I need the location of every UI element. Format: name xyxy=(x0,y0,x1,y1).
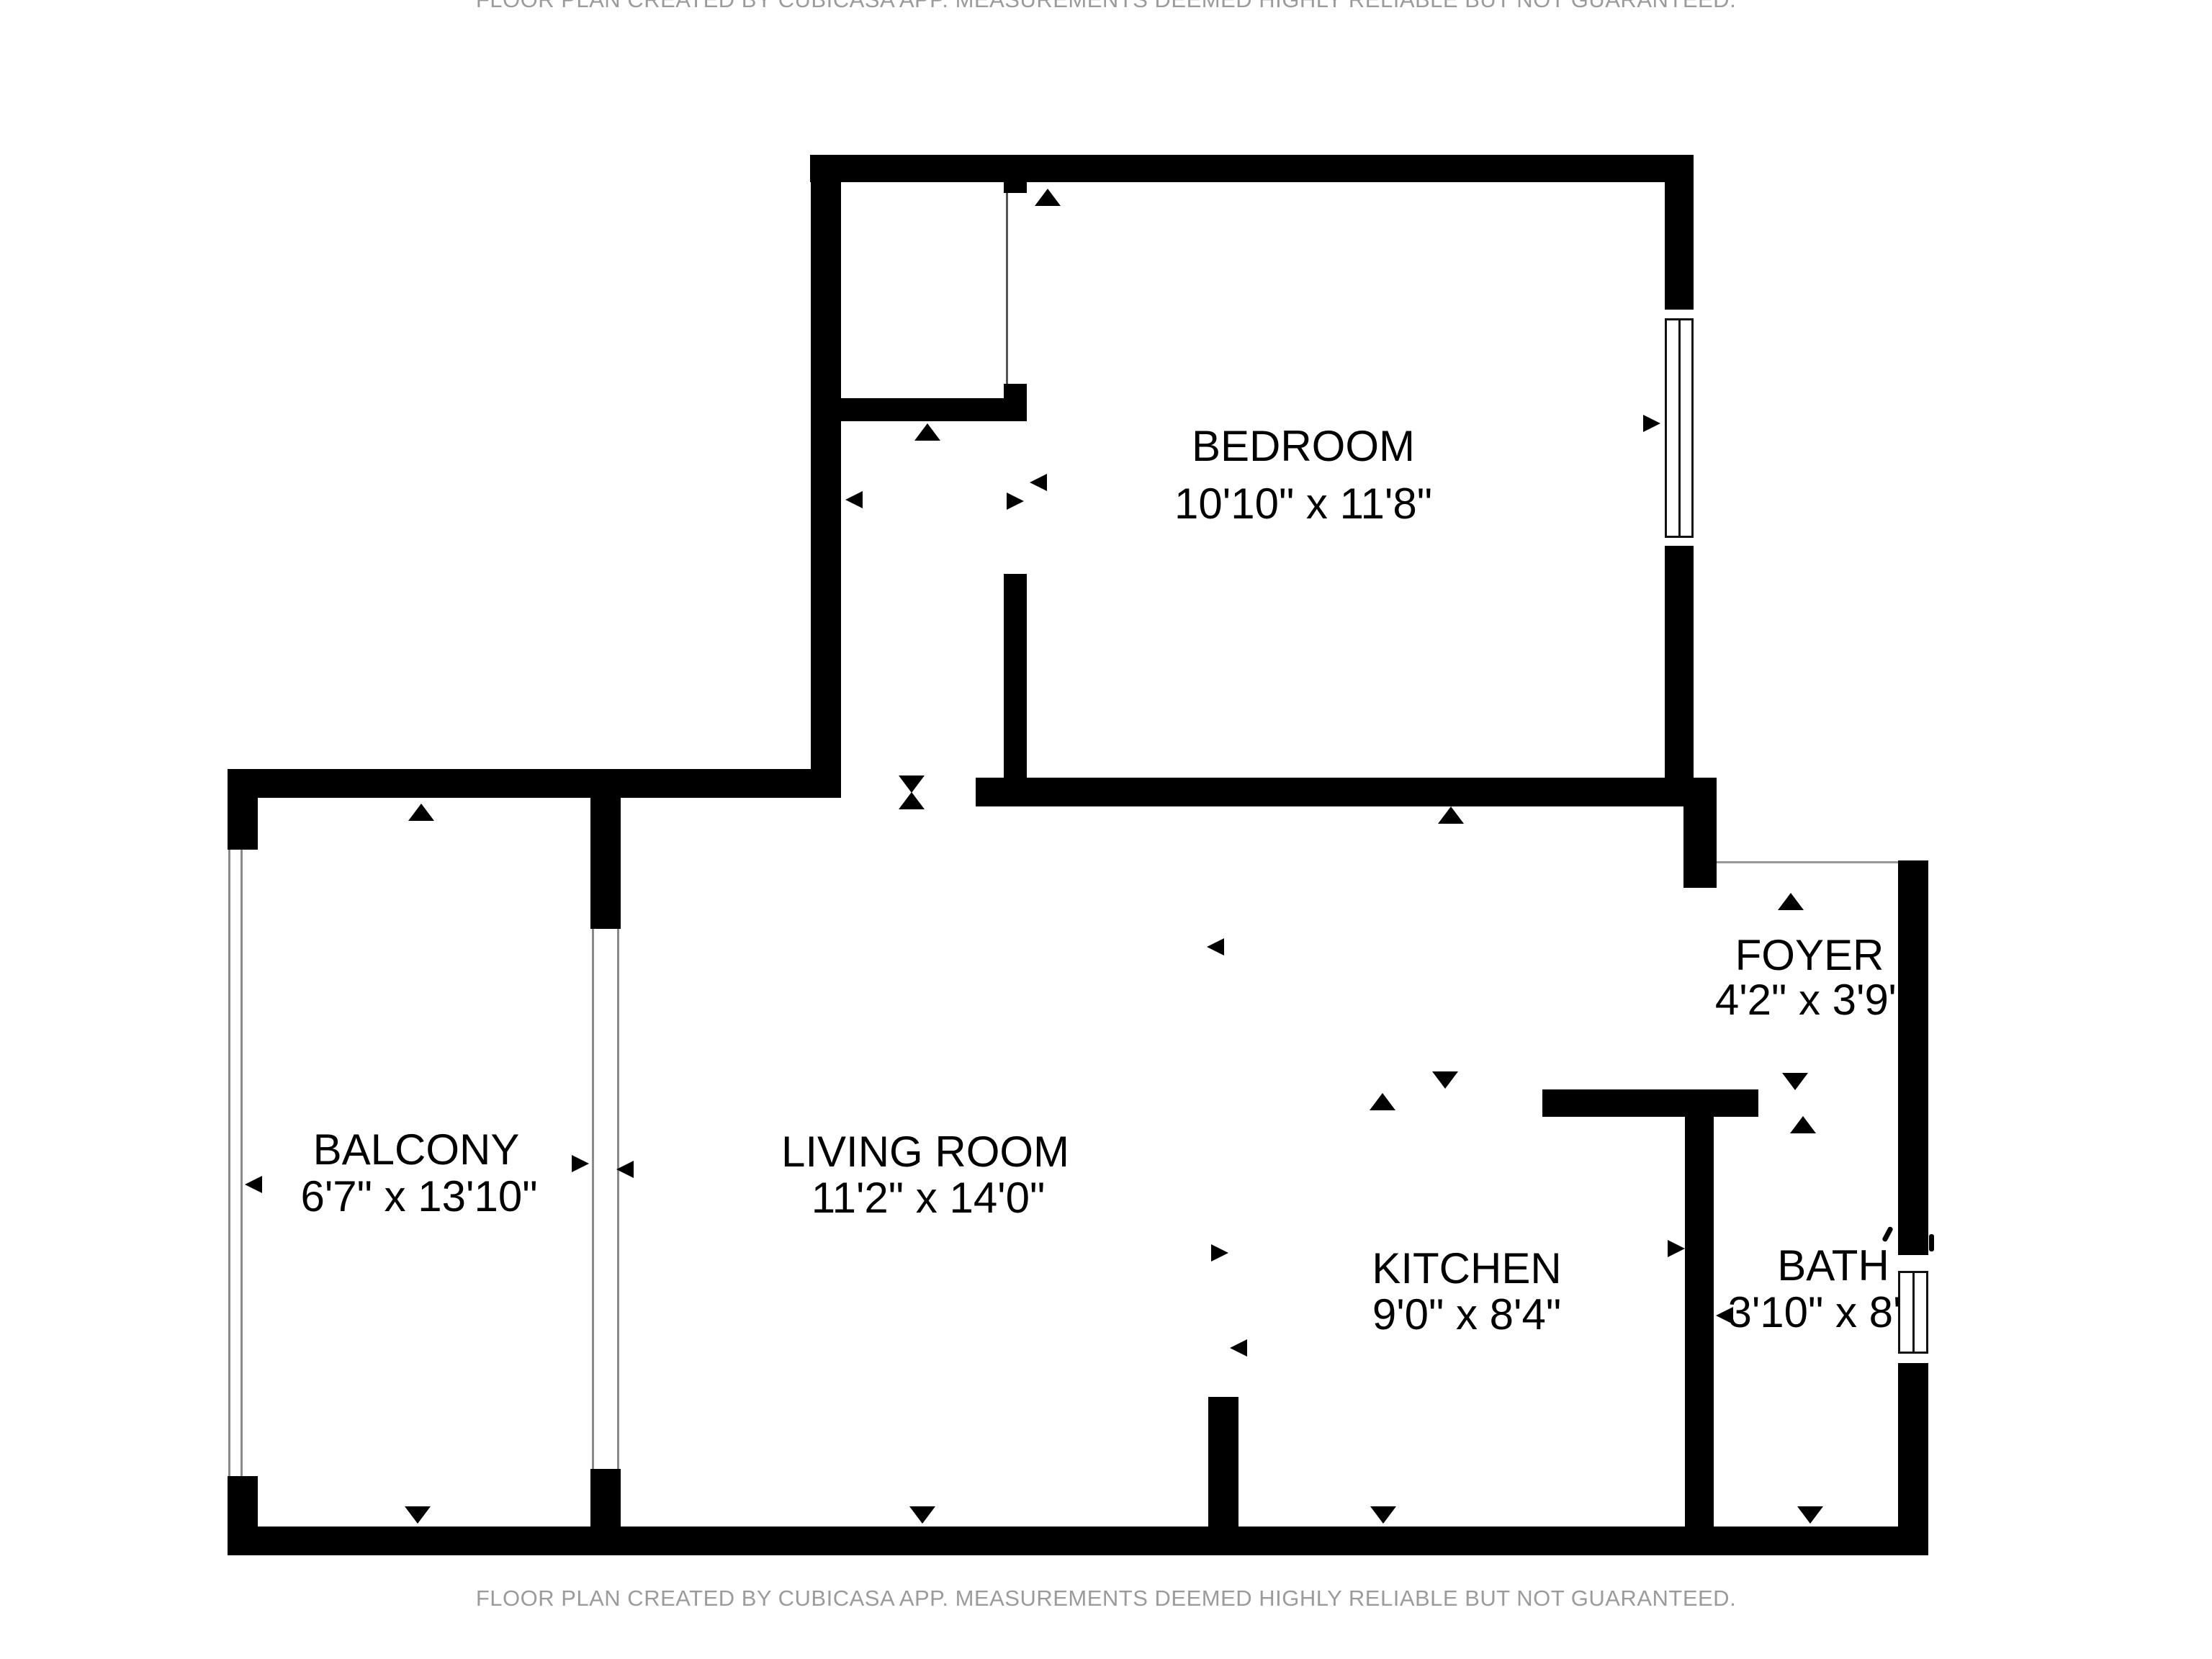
entry-door-threshold xyxy=(1717,861,1898,863)
balcony-divider-bot xyxy=(590,1469,621,1527)
kitchen-top-marker xyxy=(1438,806,1464,824)
kitchen-north-wall xyxy=(1542,1089,1758,1117)
kitchen-west-marker-b xyxy=(1211,1244,1228,1262)
south-wall xyxy=(228,1527,1928,1555)
foyer-entry-marker xyxy=(1778,893,1804,910)
kitchen-bath-divider xyxy=(1685,1117,1714,1527)
bath-door-marker-b xyxy=(1790,1116,1816,1133)
bath-window-mullion xyxy=(1912,1271,1915,1354)
room-dims-bedroom: 10'10" x 11'8" xyxy=(1174,480,1432,528)
room-label-balcony: BALCONY xyxy=(313,1126,520,1174)
living-south-marker xyxy=(909,1506,935,1524)
hallway-east-wall xyxy=(1004,574,1027,806)
room-dims-foyer: 4'2" x 3'9" xyxy=(1715,976,1904,1024)
kitchen-west-marker-c xyxy=(1230,1339,1247,1357)
living-entry-marker-up xyxy=(899,792,925,809)
balcony-slider-line-b xyxy=(617,929,619,1469)
room-label-living-room: LIVING ROOM xyxy=(781,1128,1069,1176)
bedroom-west-wall xyxy=(811,182,841,798)
balcony-slider-marker-b xyxy=(616,1161,634,1178)
top-wall xyxy=(810,155,1694,182)
balcony-north-wall xyxy=(228,769,841,798)
bedroom-door-marker-b xyxy=(1030,474,1047,491)
closet-jamb-top xyxy=(1004,182,1027,193)
footer-disclaimer-text: FLOOR PLAN CREATED BY CUBICASA APP. MEAS… xyxy=(476,1587,1736,1609)
closet-jamb-bottom xyxy=(1004,384,1027,398)
room-dims-bath: 3'10" x 8' xyxy=(1727,1289,1901,1336)
room-dims-living-room: 11'2" x 14'0" xyxy=(811,1174,1046,1222)
room-label-kitchen: KITCHEN xyxy=(1372,1245,1561,1292)
balcony-slider-marker-a xyxy=(572,1155,589,1172)
foyer-east-wall-lower xyxy=(1898,1363,1928,1527)
kitchen-south-marker xyxy=(1370,1506,1396,1524)
balcony-divider-top xyxy=(590,798,621,929)
foyer-west-post xyxy=(1683,806,1717,888)
bedroom-window-mullion xyxy=(1678,318,1681,538)
hall-top-marker xyxy=(914,423,940,441)
foyer-east-wall-upper xyxy=(1898,860,1928,1258)
bath-divider-marker-a xyxy=(1668,1240,1685,1257)
bedroom-door-marker-a xyxy=(1007,493,1024,510)
balcony-rail-line-west xyxy=(228,850,230,1476)
bath-south-marker xyxy=(1797,1506,1823,1524)
closet-slider-line xyxy=(1006,193,1008,384)
room-dims-balcony: 6'7" x 13'10" xyxy=(300,1173,537,1220)
kitchen-west-wall xyxy=(1208,1397,1238,1527)
bedroom-window-marker xyxy=(1643,415,1660,432)
room-label-bath: BATH xyxy=(1777,1242,1889,1290)
balcony-west-post-bot xyxy=(228,1476,258,1527)
living-entry-marker-dn xyxy=(899,775,925,793)
bath-door-marker-a xyxy=(1782,1073,1808,1090)
kitchen-north-marker-b xyxy=(1432,1071,1458,1089)
room-dims-kitchen: 9'0" x 8'4" xyxy=(1372,1291,1561,1339)
floor-plan: FLOOR PLAN CREATED BY CUBICASA APP. MEAS… xyxy=(0,0,2212,1659)
top-clipped-disclaimer-text: FLOOR PLAN CREATED BY CUBICASA APP. MEAS… xyxy=(476,0,1736,11)
room-label-bedroom: BEDROOM xyxy=(1192,423,1415,470)
balcony-west-marker xyxy=(245,1176,262,1193)
balcony-rail-line-east xyxy=(240,850,243,1476)
kitchen-north-marker-a xyxy=(1370,1093,1395,1110)
bath-tick-b xyxy=(1929,1234,1934,1251)
bedroom-south-wall xyxy=(976,778,1717,806)
room-label-foyer: FOYER xyxy=(1735,932,1884,979)
balcony-south-marker xyxy=(405,1506,431,1524)
bath-tick-a xyxy=(1881,1226,1894,1243)
balcony-west-post-top xyxy=(228,798,258,850)
balcony-north-marker xyxy=(408,804,434,821)
hall-west-marker xyxy=(845,491,863,508)
balcony-slider-line-a xyxy=(592,929,594,1469)
closet-south-wall xyxy=(811,398,1027,421)
closet-door-marker xyxy=(1035,189,1061,206)
kitchen-west-marker-a xyxy=(1207,938,1224,956)
